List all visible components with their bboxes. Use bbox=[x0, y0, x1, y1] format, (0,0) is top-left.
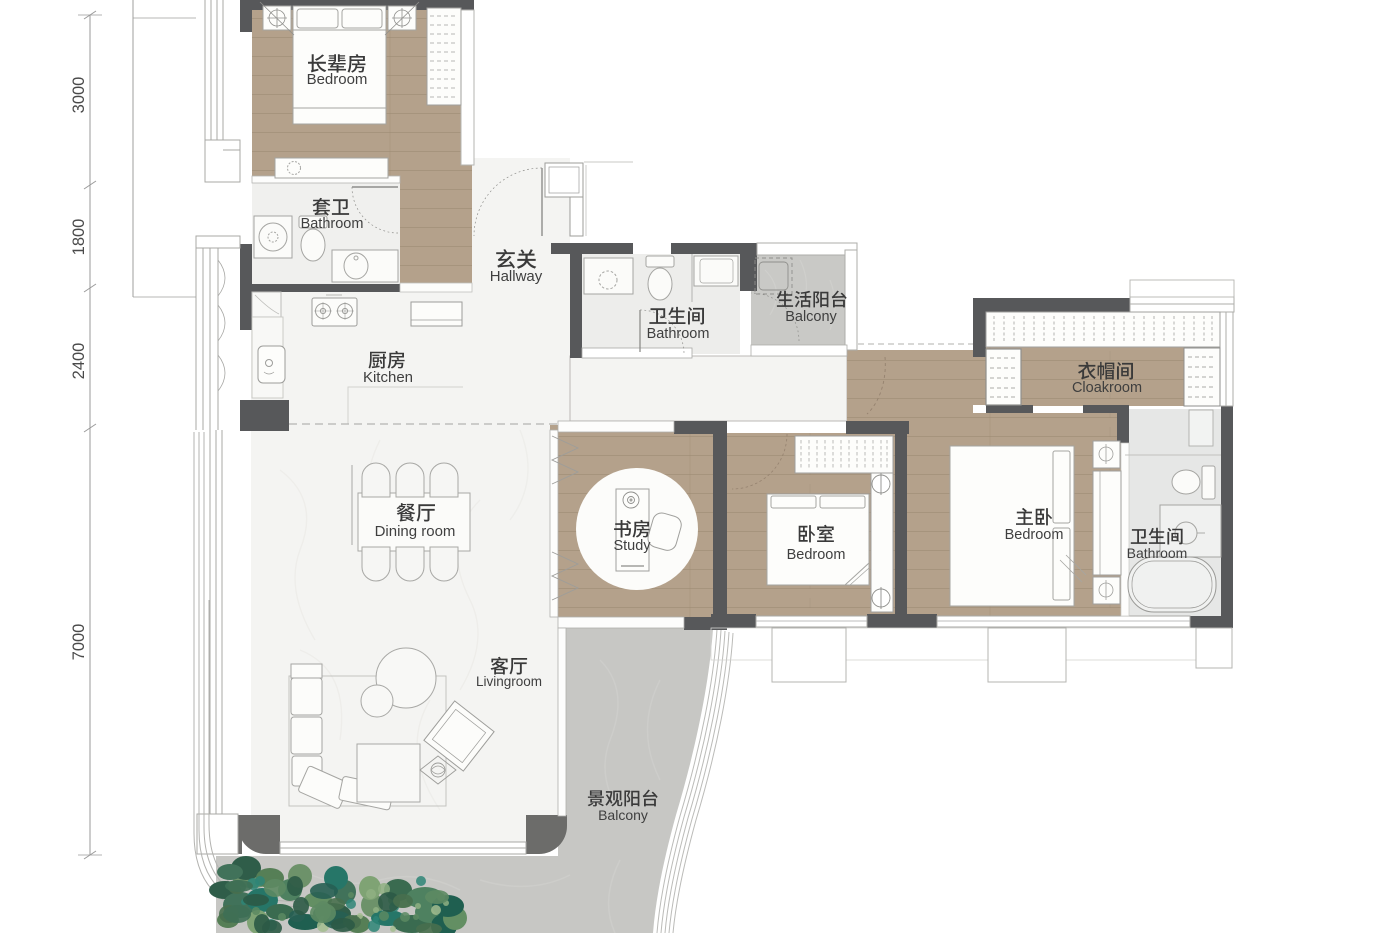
svg-text:Hallway: Hallway bbox=[490, 268, 543, 285]
svg-text:Study: Study bbox=[613, 538, 651, 554]
svg-text:Balcony: Balcony bbox=[598, 807, 648, 823]
svg-text:Kitchen: Kitchen bbox=[363, 369, 413, 386]
svg-text:Bedroom: Bedroom bbox=[307, 71, 368, 88]
svg-text:1800: 1800 bbox=[70, 219, 88, 256]
svg-text:Bedroom: Bedroom bbox=[1005, 527, 1064, 543]
svg-text:Bedroom: Bedroom bbox=[787, 547, 846, 563]
svg-text:Cloakroom: Cloakroom bbox=[1072, 380, 1142, 396]
svg-text:3000: 3000 bbox=[70, 77, 88, 114]
svg-text:Bathroom: Bathroom bbox=[301, 216, 364, 232]
svg-text:2400: 2400 bbox=[70, 343, 88, 380]
svg-text:Balcony: Balcony bbox=[785, 309, 837, 325]
svg-text:Bathroom: Bathroom bbox=[1127, 545, 1188, 561]
svg-text:Livingroom: Livingroom bbox=[476, 674, 542, 689]
svg-text:7000: 7000 bbox=[70, 624, 88, 661]
svg-text:Bathroom: Bathroom bbox=[647, 326, 710, 342]
svg-text:Dining room: Dining room bbox=[375, 523, 456, 540]
